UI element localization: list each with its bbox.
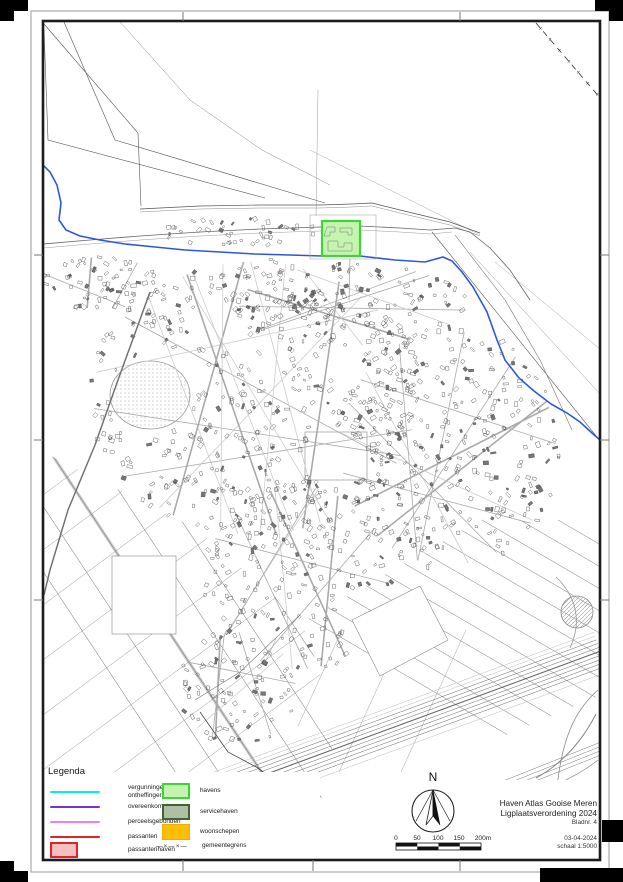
legend-item-overeenkomsten: overeenkomsten xyxy=(50,803,175,811)
scale-bar: 0 50 100 150 200m xyxy=(393,832,503,856)
legend-item-gemeentegrens: —×—×— gemeentegrens xyxy=(156,842,246,850)
svg-text:×: × xyxy=(576,70,580,76)
scale-tick: 200m xyxy=(475,835,492,842)
servicehaven-area-swatch xyxy=(162,804,190,820)
passanten-line-swatch xyxy=(50,836,100,839)
legend-label: gemeentegrens xyxy=(202,842,246,850)
scale-tick: 100 xyxy=(432,835,443,842)
overeenkomsten-line-swatch xyxy=(50,806,100,809)
sheet-number: Bladnr. 4 xyxy=(500,819,597,827)
svg-text:×: × xyxy=(548,37,552,43)
scale-bar-blocks xyxy=(396,843,481,850)
svg-text:×: × xyxy=(586,81,590,87)
svg-text:×: × xyxy=(558,48,562,54)
map-subtitle: Ligplaatsverordening 2024 xyxy=(500,809,597,819)
legend-label: servicehaven xyxy=(200,808,238,816)
svg-text:×: × xyxy=(567,59,571,65)
legend-title: Legenda xyxy=(48,766,85,777)
legend-item-havens: havens xyxy=(162,783,221,799)
vergunningen-line-swatch xyxy=(50,791,100,794)
title-block: Haven Atlas Gooise Meren Ligplaatsverord… xyxy=(500,799,597,851)
scale-tick: 0 xyxy=(394,835,398,842)
north-arrow-icon: N xyxy=(409,769,457,839)
map-title: Haven Atlas Gooise Meren xyxy=(500,799,597,809)
map-sheet: ××××××× Legenda vergunningen / ontheffin… xyxy=(0,0,623,882)
legend-label: passanten xyxy=(128,833,158,841)
legend-item-perceelsgebonden: perceelsgebonden xyxy=(50,818,181,826)
map-scale: schaal 1:5000 xyxy=(500,843,597,851)
passantenhaven-area-swatch xyxy=(50,842,78,858)
map-canvas: ××××××× xyxy=(0,0,623,882)
woonschepen-area-swatch xyxy=(162,824,190,840)
havens-area-swatch xyxy=(162,783,190,799)
legend-item-passanten: passanten xyxy=(50,833,158,841)
north-label: N xyxy=(429,770,438,784)
legend-item-woonschepen: woonschepen xyxy=(162,824,239,840)
perceelsgebonden-line-swatch xyxy=(50,821,100,824)
gemeentegrens-line-swatch: —×—×— xyxy=(156,843,196,850)
svg-text:×: × xyxy=(539,26,543,32)
scale-tick: 150 xyxy=(453,835,464,842)
scale-tick: 50 xyxy=(413,835,421,842)
legend-item-servicehaven: servicehaven xyxy=(162,804,238,820)
legend-label: havens xyxy=(200,787,221,795)
map-date: 03-04-2024 xyxy=(500,835,597,843)
legend-label: woonschepen xyxy=(200,828,239,836)
